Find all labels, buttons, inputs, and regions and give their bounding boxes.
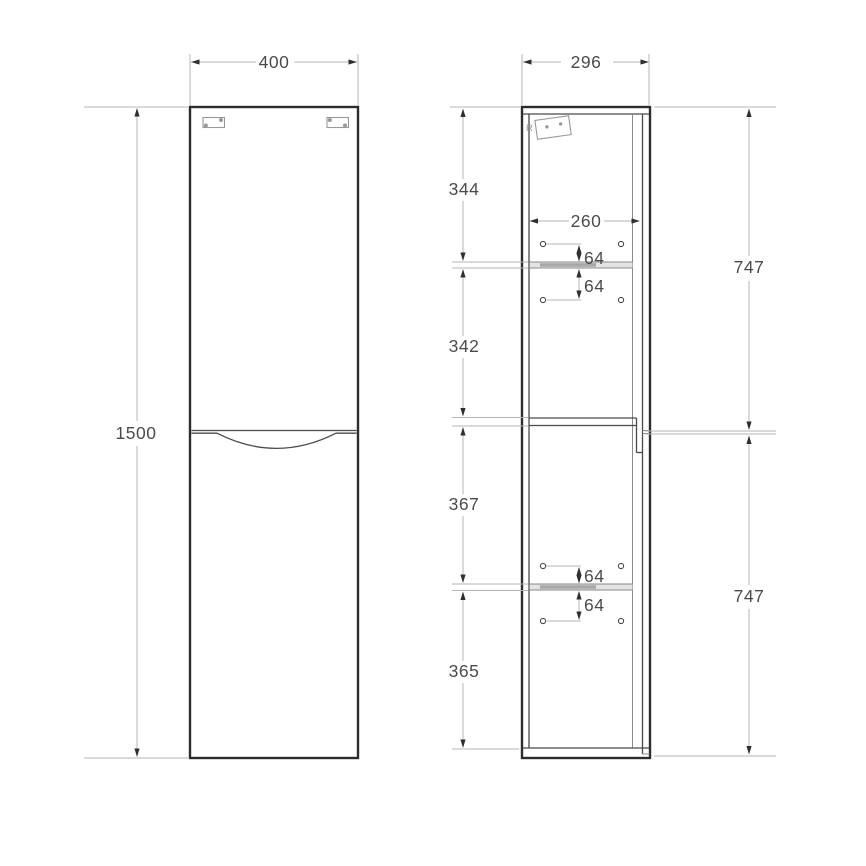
dim-front-height-label: 1500 <box>116 423 157 443</box>
bracket-screw-icon <box>328 118 332 122</box>
dim-front-width: 400 <box>190 52 358 106</box>
bracket-screw-icon <box>219 118 223 122</box>
shelf-pin-hole <box>618 618 623 623</box>
shelf-pin-holes <box>540 241 623 623</box>
shelf-pin-hole <box>618 563 623 568</box>
shelf-pin-hole <box>540 618 545 623</box>
front-view <box>190 107 358 758</box>
dim-segment-upper-middle-label: 342 <box>449 336 480 356</box>
dim-door-lower-label: 747 <box>734 586 765 606</box>
wall-bracket-right <box>327 118 349 128</box>
side-view: R <box>522 107 650 758</box>
dim-door-upper-label: 747 <box>734 257 765 277</box>
lower-shelf <box>530 584 633 590</box>
dim-pin-lower-above-label: 64 <box>584 566 604 586</box>
bracket-mark-label: R <box>526 123 533 134</box>
dim-front-height: 1500 <box>84 107 188 758</box>
dim-pin-offsets-lower: 64 64 <box>576 566 604 620</box>
dim-segment-lower-middle-label: 367 <box>449 494 480 514</box>
dim-segment-bottom-label: 365 <box>449 661 480 681</box>
bracket-screw-icon <box>204 124 208 128</box>
shelf-pin-hole <box>618 297 623 302</box>
dim-interior-depth-label: 260 <box>571 211 602 231</box>
dim-door-lower: 747 <box>654 436 776 757</box>
shelf-pin-hole <box>540 297 545 302</box>
middle-divider <box>529 418 643 453</box>
bracket-screw-icon <box>343 124 347 128</box>
hanging-bracket-side: R <box>526 116 571 140</box>
side-cabinet-outline <box>522 107 650 758</box>
cabinet-dimension-drawing: R 400 296 <box>0 0 866 866</box>
dim-interior-depth: 260 <box>530 211 641 231</box>
front-cabinet-outline <box>190 107 358 758</box>
dim-segment-chain: 344 342 367 365 <box>449 107 528 749</box>
technical-drawing-canvas: R 400 296 <box>0 0 866 866</box>
wall-bracket-left <box>203 118 225 128</box>
dim-pin-lower-below-label: 64 <box>584 595 604 615</box>
dim-front-width-label: 400 <box>259 52 290 72</box>
dim-door-upper: 747 <box>645 107 776 434</box>
shelf-pin-hole <box>618 241 623 246</box>
dim-side-depth-label: 296 <box>571 52 602 72</box>
dim-pin-offsets-upper: 64 64 <box>576 245 604 299</box>
dim-segment-top-label: 344 <box>449 179 480 199</box>
dim-pin-upper-above-label: 64 <box>584 248 604 268</box>
shelf-pin-hole <box>540 563 545 568</box>
handle-recess-arc <box>217 433 336 448</box>
dim-pin-upper-below-label: 64 <box>584 276 604 296</box>
upper-shelf <box>530 262 633 268</box>
shelf-pin-hole <box>540 241 545 246</box>
dim-side-depth: 296 <box>522 52 649 105</box>
dimensions: 400 296 1500 <box>84 52 776 758</box>
bracket-body <box>535 116 571 140</box>
